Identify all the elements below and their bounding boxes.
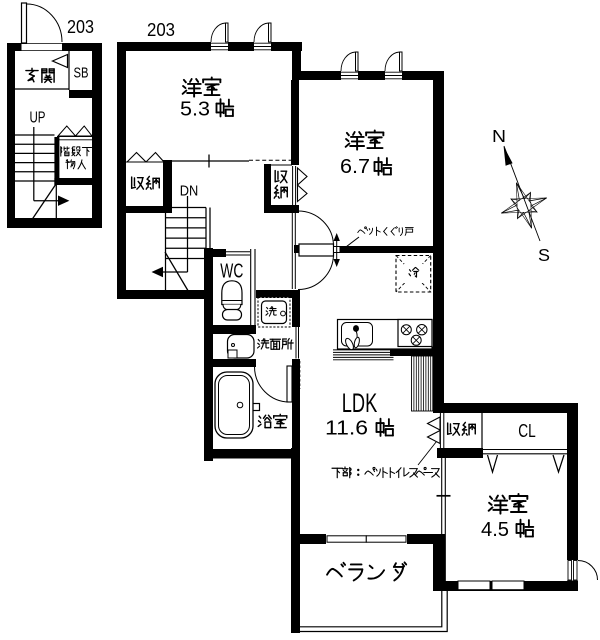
svg-text:203: 203 <box>67 17 94 37</box>
svg-text:S: S <box>538 245 550 265</box>
svg-text:SB: SB <box>74 66 89 82</box>
svg-text:6.7: 6.7 <box>340 155 370 178</box>
svg-text:11.6: 11.6 <box>325 417 368 440</box>
svg-text:203: 203 <box>147 20 175 40</box>
svg-text:5.3: 5.3 <box>180 98 210 121</box>
svg-text:WC: WC <box>220 261 243 283</box>
svg-text:DN: DN <box>180 184 199 200</box>
svg-text:UP: UP <box>30 110 46 127</box>
svg-text:4.5: 4.5 <box>481 518 509 541</box>
svg-text:LDK: LDK <box>342 388 378 418</box>
svg-text:CL: CL <box>518 421 536 441</box>
svg-text:N: N <box>492 126 506 146</box>
